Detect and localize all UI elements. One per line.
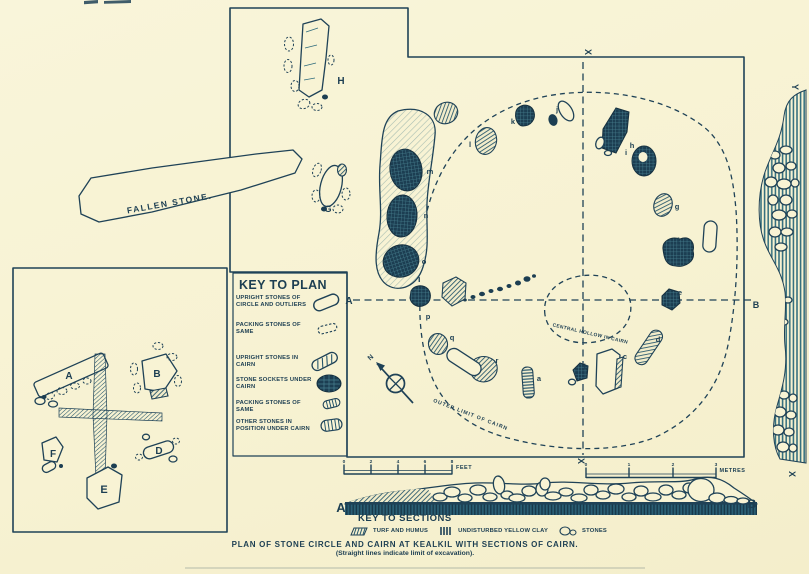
packing-stone-symbol [314,320,342,338]
fallen-upright-sw [444,346,483,378]
stone-i [594,108,629,156]
label-stone-d: d [656,335,661,344]
cairn-stones [410,98,718,398]
svg-text:1: 1 [628,462,631,468]
label-inset-b: B [153,369,160,380]
label-profile-b: B [748,497,757,511]
stone-d [632,328,665,368]
stone-g [651,191,675,218]
label-stone-k: k [511,117,516,126]
scale-bar-feet: 0 2 4 6 8 FEET [343,459,473,475]
key-item-label: PACKING STONES OF SAME [236,400,312,414]
stone-j [547,113,559,127]
caption-title: PLAN OF STONE CIRCLE AND CAIRN AT KEALKI… [160,540,650,549]
svg-text:3: 3 [715,462,718,468]
label-stone-e: e [678,288,682,297]
plan-drawing: N FALLEN STONE. [0,0,809,574]
label-stone-o: o [422,257,427,266]
stone-q [427,332,449,356]
key-item-label: STONE SOCKETS UNDER CAIRN [236,377,312,391]
label-x-top: X [583,49,593,55]
key-item-label: PACKING STONES OF SAME [236,322,312,336]
scanned-plan-page: N FALLEN STONE. [0,0,809,574]
label-inset-e: E [100,484,107,496]
svg-text:4: 4 [397,459,400,465]
sections-item-label: UNDISTURBED YELLOW CLAY [458,528,548,534]
sections-item-label: TURF AND HUMUS [373,528,428,534]
fallen-stone: FALLEN STONE. [79,150,302,222]
svg-text:6: 6 [424,459,427,465]
sections-item-label: STONES [582,528,607,534]
label-stone-a: a [537,374,542,383]
label-stone-g: g [675,202,680,211]
label-stone-q: q [450,333,455,342]
label-stone-n: n [424,211,429,220]
label-stone-m: m [427,167,434,176]
label-g-outlier: G [324,204,331,214]
east-baulk-section [759,90,806,463]
label-inset-f: F [50,449,56,460]
label-stone-r: r [496,356,499,365]
north-arrow: N [367,354,413,403]
svg-text:2: 2 [672,462,675,468]
stones-symbol [559,526,577,536]
outer-limit-of-cairn-outline [419,92,737,448]
other-cairn-stone-symbol [318,415,346,435]
outer-limit-label: OUTER LIMIT OF CAIRN [432,398,509,432]
upright-cairn-stone-symbol [306,348,344,373]
stone-h-ring [632,146,656,176]
label-x-bottom: X [576,458,586,464]
scale-bar-metres: 0 1 2 3 METRES [585,462,746,478]
feet-label: FEET [456,465,472,471]
stone-c [596,349,623,394]
packing-cairn-stone-symbol [320,395,344,412]
label-y-east: Y [790,84,800,90]
key-to-sections-title: KEY TO SECTIONS [358,513,654,524]
label-stone-p: p [426,312,431,321]
label-stone-i: i [625,148,627,157]
west-stone-setting [376,109,435,288]
key-item-label: UPRIGHT STONES IN CAIRN [236,355,312,369]
stone-socket-symbol [314,372,344,395]
stone-a [521,367,534,399]
key-to-plan-panel: KEY TO PLAN UPRIGHT STONES OF CIRCLE AND… [234,274,346,455]
turf-symbol [350,527,368,536]
torn-text-fragment [84,0,131,4]
label-inset-a: A [65,371,72,382]
label-stone-h: h [630,141,635,150]
hatched-stone-by-p [442,277,466,306]
label-x-east: X [787,471,797,477]
svg-text:8: 8 [451,459,454,465]
inset-trench-horizontal [59,408,162,421]
outlier-oval-ne [555,98,577,123]
key-item-label: UPRIGHT STONES OF CIRCLE AND OUTLIERS [236,295,312,309]
svg-text:2: 2 [370,459,373,465]
label-inset-d: D [155,446,162,457]
key-item-label: OTHER STONES IN POSITION UNDER CAIRN [236,419,312,433]
upright-circle-stone-symbol [308,290,344,314]
label-stone-c: c [623,352,627,361]
label-line-b: B [753,300,760,310]
outlier-stone-h [284,19,334,111]
circle-upright-east [702,221,717,253]
stone-l [473,126,499,157]
packing-stone-trail [463,274,536,301]
label-stone-l: l [469,140,471,149]
metres-label: METRES [720,468,746,474]
plan-caption: PLAN OF STONE CIRCLE AND CAIRN AT KEALKI… [160,540,650,557]
stone-p [410,286,430,307]
north-label: N [367,354,375,363]
hatched-stone-nw [431,98,462,127]
label-line-a: A [345,296,352,307]
caption-subtitle: (Straight lines indicate limit of excava… [160,550,650,557]
stone-k [516,105,535,126]
label-stone-b: b [584,362,589,371]
svg-text:0: 0 [343,459,346,465]
label-stone-j: j [555,105,558,114]
clay-symbol [439,526,453,536]
label-h-outlier: H [337,76,344,87]
key-to-sections-panel: KEY TO SECTIONS TURF AND HUMUS UNDISTURB… [344,513,654,536]
section-profile [345,475,757,515]
